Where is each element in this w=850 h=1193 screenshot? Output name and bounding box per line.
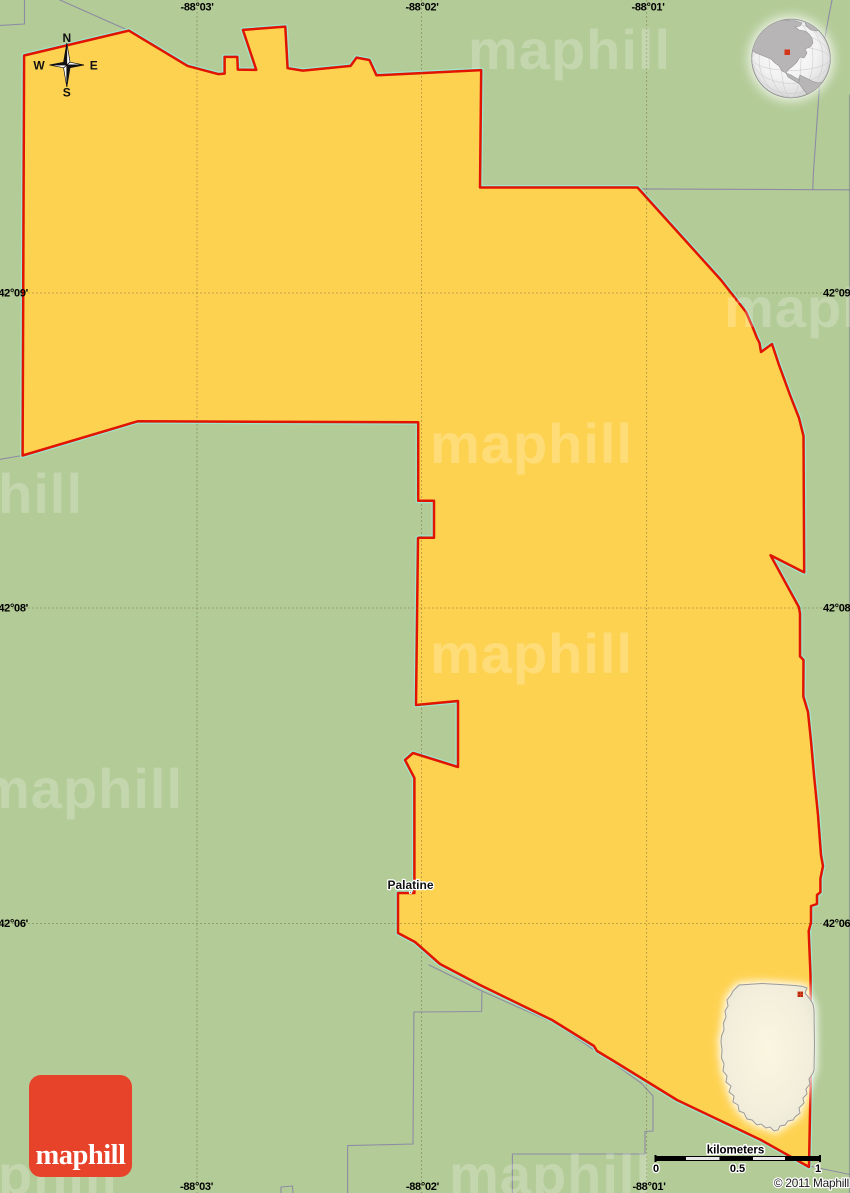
svg-text:-88°02': -88°02' [405,1,439,13]
svg-text:-88°03': -88°03' [180,1,214,13]
svg-text:Palatine: Palatine [387,878,433,892]
svg-text:W: W [33,58,45,72]
svg-text:maphill: maphill [36,1140,127,1171]
svg-text:0.5: 0.5 [730,1163,745,1175]
svg-text:-88°01': -88°01' [632,1181,666,1193]
svg-text:kilometers: kilometers [707,1145,765,1157]
svg-text:maphill: maphill [0,462,83,525]
svg-text:42°06': 42°06' [823,918,850,930]
svg-text:-88°03': -88°03' [180,1181,214,1193]
svg-text:42°06': 42°06' [0,918,29,930]
svg-text:N: N [62,31,71,45]
svg-text:0: 0 [653,1163,659,1175]
svg-text:maphill: maphill [0,757,183,820]
svg-text:1: 1 [815,1163,821,1175]
svg-text:maphill: maphill [724,276,850,339]
svg-text:S: S [63,86,71,100]
svg-text:42°08': 42°08' [0,603,29,615]
svg-text:maphill: maphill [430,622,633,685]
svg-text:© 2011 Maphill: © 2011 Maphill [774,1176,849,1190]
svg-text:-88°02': -88°02' [406,1181,440,1193]
svg-text:42°09': 42°09' [823,288,850,300]
svg-text:maphill: maphill [449,1143,652,1193]
svg-text:42°08': 42°08' [823,603,850,615]
svg-text:maphill: maphill [430,412,633,475]
svg-text:42°09': 42°09' [0,288,29,300]
svg-text:-88°01': -88°01' [631,1,665,13]
svg-text:E: E [90,59,98,73]
svg-text:maphill: maphill [468,18,671,81]
